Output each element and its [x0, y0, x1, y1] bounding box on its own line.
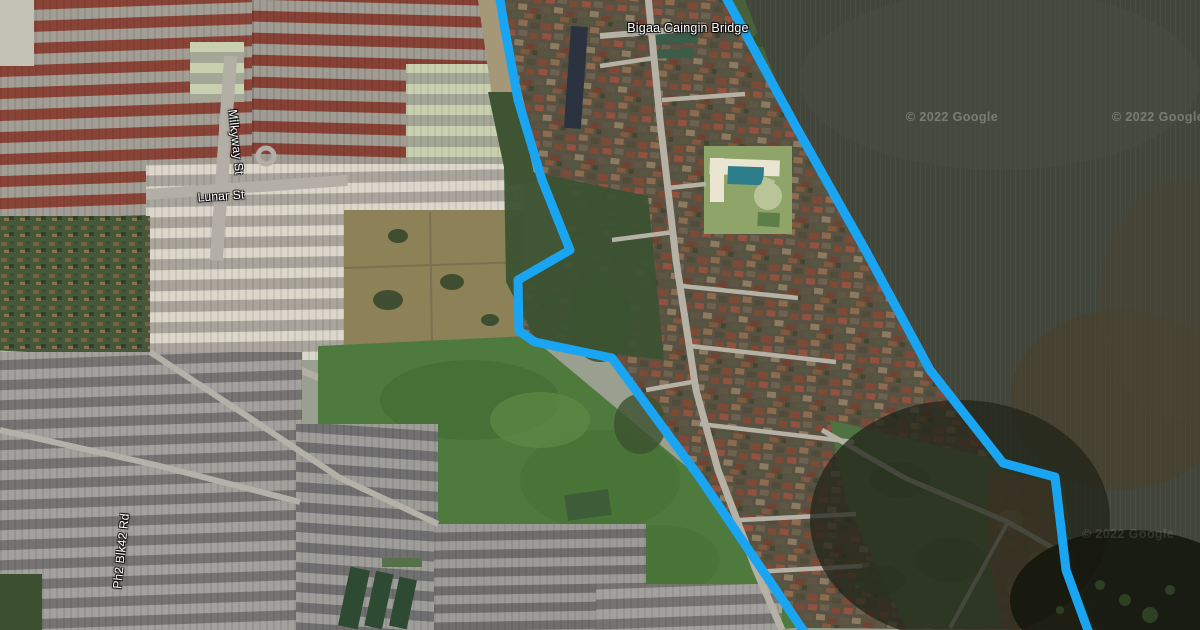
google-copyright-watermark: © 2022 Google	[1082, 527, 1174, 541]
poi-label-bridge[interactable]: Bigaa Caingin Bridge	[627, 21, 748, 35]
farm-fields	[344, 210, 522, 348]
satellite-imagery-layer	[0, 0, 1200, 630]
google-copyright-watermark: © 2022 Google	[1112, 110, 1200, 124]
map-viewport[interactable]: Bigaa Caingin Bridge Milkyway St Lunar S…	[0, 0, 1200, 630]
informal-settlement-trees	[0, 216, 150, 358]
google-copyright-watermark: © 2022 Google	[906, 110, 998, 124]
resort-compound	[704, 146, 792, 234]
